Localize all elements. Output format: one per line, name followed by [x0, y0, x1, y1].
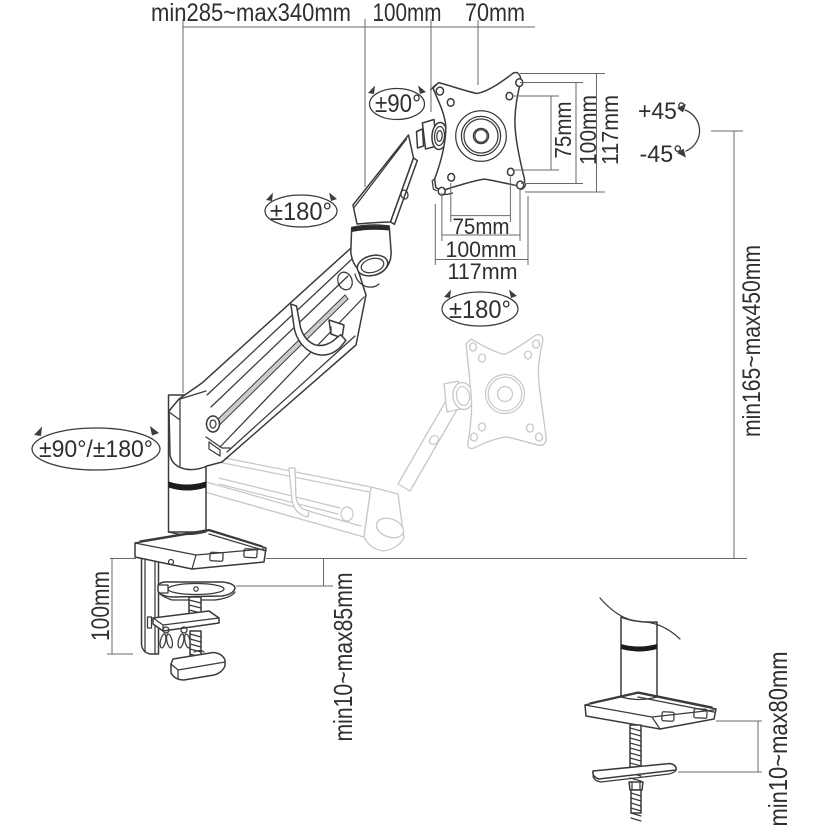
svg-text:75mm: 75mm	[550, 102, 576, 159]
svg-text:min165~max450mm: min165~max450mm	[738, 245, 766, 437]
svg-text:117mm: 117mm	[448, 259, 518, 284]
svg-text:-45°: -45°	[640, 141, 683, 168]
svg-text:±90°: ±90°	[375, 90, 421, 118]
svg-text:±180°: ±180°	[449, 296, 511, 324]
svg-text:min10~max85mm: min10~max85mm	[328, 573, 358, 742]
svg-text:min10~max80mm: min10~max80mm	[763, 652, 793, 827]
svg-text:±180°: ±180°	[270, 198, 332, 226]
svg-text:70mm: 70mm	[465, 0, 525, 27]
svg-text:±90°/±180°: ±90°/±180°	[39, 436, 153, 463]
svg-text:+45°: +45°	[638, 98, 686, 125]
svg-text:75mm: 75mm	[453, 214, 510, 239]
svg-text:min285~max340mm: min285~max340mm	[151, 0, 351, 27]
svg-text:117mm: 117mm	[597, 95, 623, 165]
svg-text:100mm: 100mm	[87, 571, 115, 641]
svg-text:100mm: 100mm	[373, 0, 442, 27]
